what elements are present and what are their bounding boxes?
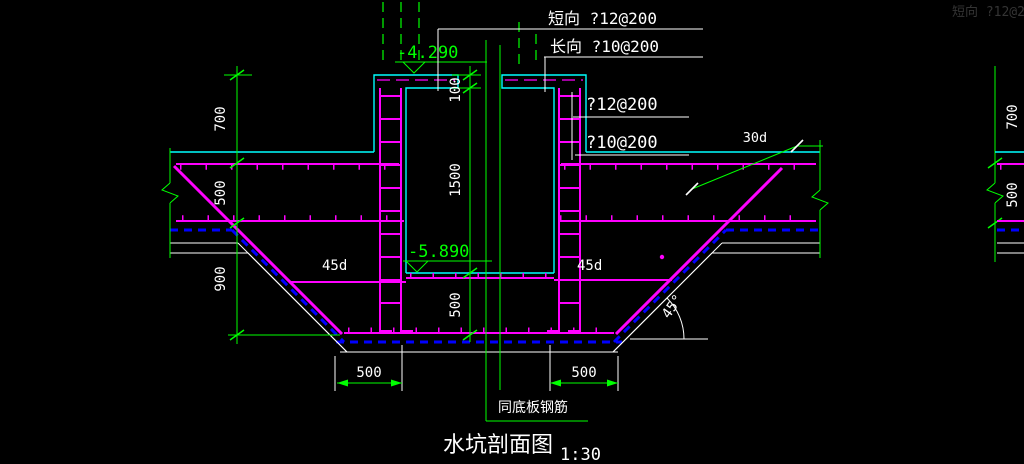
elevation-wall-top: -4.290 — [395, 43, 487, 73]
adjacent-dim-500: 500 — [1005, 182, 1021, 207]
anchor-45d-right-label: 45d — [577, 258, 602, 274]
long-direction-label: 长向 ?10@200 — [550, 37, 659, 56]
dimension-left-chain: 700 500 900 — [213, 66, 340, 344]
bottom-note: 同底板钢筋 — [486, 399, 588, 421]
title-block: 水坑剖面图 1:30 — [443, 433, 601, 464]
dimension-center-chain: 100 1500 500 — [448, 66, 481, 342]
adjacent-dim-700: 700 — [1005, 104, 1021, 129]
angle-annotation: 45° — [630, 292, 708, 339]
dimension-30d: 30d — [686, 130, 823, 195]
same-as-slab-note-label: 同底板钢筋 — [498, 399, 568, 416]
elevation-pit-bottom-label: -5.890 — [408, 242, 469, 262]
reinforcement — [174, 80, 816, 334]
adjacent-ghost-label: 短向 ?12@200 — [952, 4, 1024, 20]
adjacent-drawing-partial: 700 500 短向 ?12@200 — [952, 4, 1024, 262]
concrete-outlines — [162, 75, 828, 352]
pit-section-drawing: 700 500 900 100 1500 500 500 500 30d — [0, 0, 1024, 464]
dim-bottom-500-right: 500 — [571, 365, 596, 381]
drawing-scale: 1:30 — [560, 445, 601, 464]
anchor-45d-left-label: 45d — [322, 258, 347, 274]
dim-left-700: 700 — [213, 106, 229, 131]
drawing-title: 水坑剖面图 — [443, 433, 553, 458]
dim-left-900: 900 — [213, 266, 229, 291]
dim-left-500: 500 — [213, 180, 229, 205]
wall-rebar-label: ?12@200 — [586, 95, 658, 115]
dim-bottom-500-left: 500 — [356, 365, 381, 381]
dim-center-1500: 1500 — [448, 163, 464, 197]
dim-center-100: 100 — [448, 77, 464, 102]
elevation-wall-top-label: -4.290 — [397, 43, 458, 63]
elevation-pit-bottom: -5.890 — [403, 242, 492, 272]
short-direction-label: 短向 ?12@200 — [548, 9, 657, 28]
cad-canvas: 700 500 900 100 1500 500 500 500 30d — [0, 0, 1024, 464]
angle-45-label: 45° — [659, 292, 687, 322]
dim-center-500: 500 — [448, 292, 464, 317]
slab-rebar-label: ?10@200 — [586, 133, 658, 153]
rebar-section-dot — [660, 255, 664, 259]
anchor-30d-label: 30d — [743, 130, 767, 146]
